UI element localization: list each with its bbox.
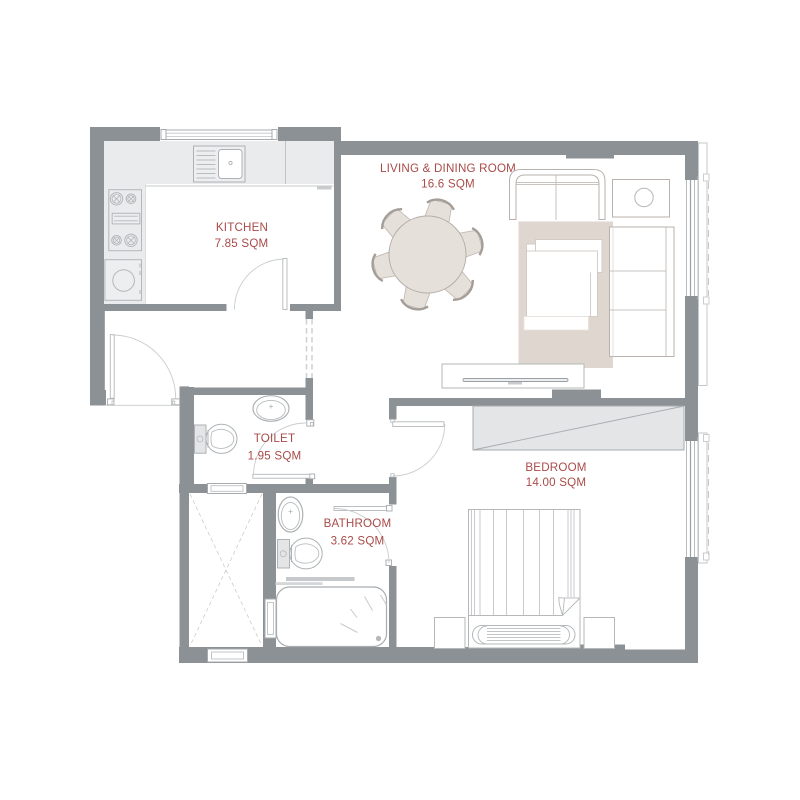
svg-text:BATHROOM: BATHROOM bbox=[324, 517, 392, 530]
svg-text:16.6 SQM: 16.6 SQM bbox=[421, 178, 475, 191]
svg-text:14.00 SQM: 14.00 SQM bbox=[526, 476, 586, 489]
svg-text:BEDROOM: BEDROOM bbox=[525, 461, 586, 474]
svg-text:1.95 SQM: 1.95 SQM bbox=[248, 450, 302, 463]
svg-text:7.85 SQM: 7.85 SQM bbox=[215, 237, 269, 250]
svg-text:LIVING & DINING ROOM: LIVING & DINING ROOM bbox=[380, 162, 516, 175]
svg-text:3.62 SQM: 3.62 SQM bbox=[331, 535, 385, 548]
svg-text:KITCHEN: KITCHEN bbox=[216, 221, 268, 234]
svg-text:TOILET: TOILET bbox=[254, 432, 296, 445]
